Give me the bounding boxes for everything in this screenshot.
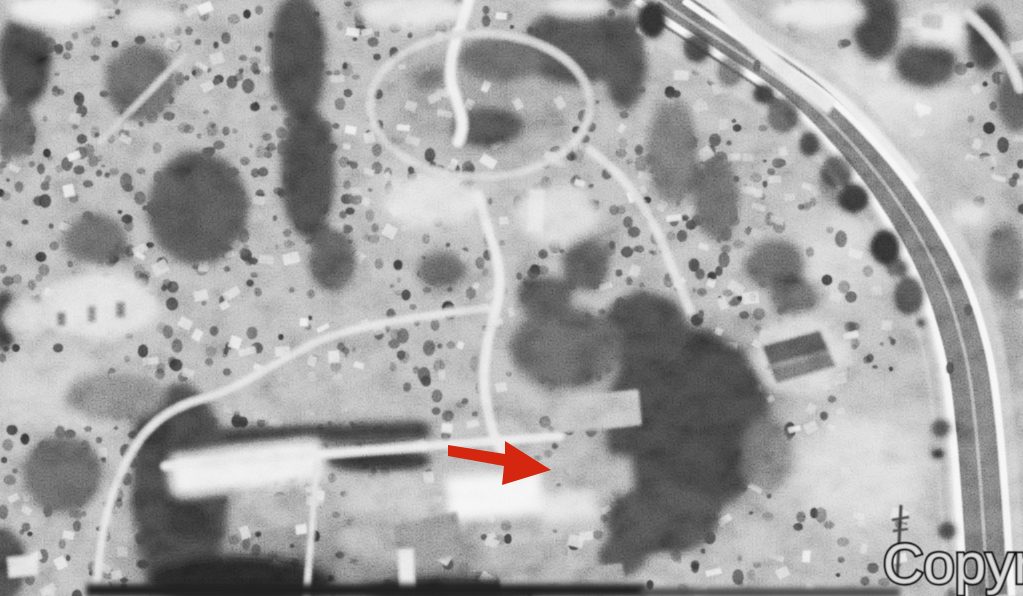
svg-text:Copyr: Copyr: [883, 532, 1023, 595]
